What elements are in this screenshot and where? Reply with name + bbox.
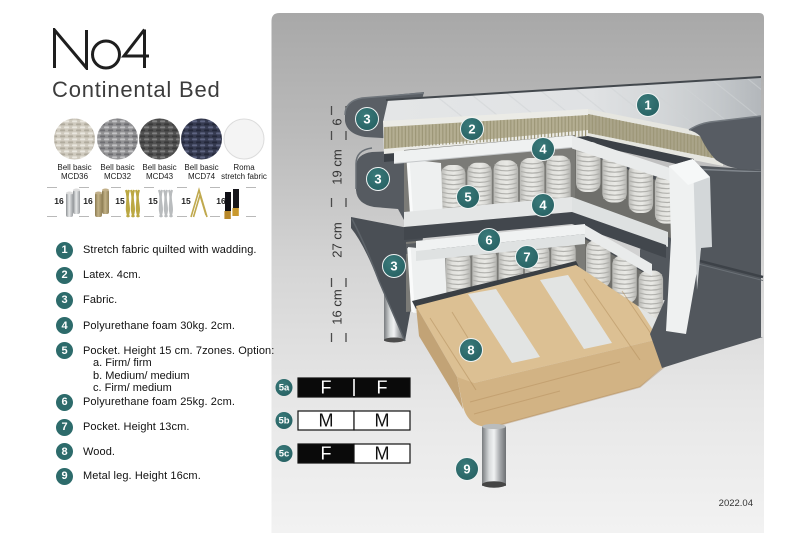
svg-text:3: 3 xyxy=(390,259,397,274)
svg-text:16: 16 xyxy=(83,196,93,206)
svg-text:15: 15 xyxy=(115,196,125,206)
svg-text:19 cm: 19 cm xyxy=(329,149,344,184)
svg-text:27 cm: 27 cm xyxy=(329,222,344,257)
svg-text:8: 8 xyxy=(467,343,474,358)
svg-text:3: 3 xyxy=(363,112,370,127)
svg-text:M: M xyxy=(375,444,390,464)
svg-text:F: F xyxy=(377,378,388,398)
svg-text:5c: 5c xyxy=(279,449,290,460)
svg-text:F: F xyxy=(321,444,332,464)
svg-text:7: 7 xyxy=(523,250,530,265)
svg-text:6: 6 xyxy=(329,118,344,125)
svg-text:M: M xyxy=(319,411,334,431)
svg-text:F: F xyxy=(321,378,332,398)
svg-text:4: 4 xyxy=(539,198,547,213)
svg-text:5: 5 xyxy=(464,190,471,205)
svg-text:9: 9 xyxy=(463,462,470,477)
svg-text:3: 3 xyxy=(374,172,381,187)
svg-text:2022.04: 2022.04 xyxy=(719,498,753,509)
svg-text:2: 2 xyxy=(468,122,475,137)
svg-text:16 cm: 16 cm xyxy=(329,289,344,324)
svg-text:16: 16 xyxy=(216,196,226,206)
svg-text:1: 1 xyxy=(644,98,651,113)
svg-text:5b: 5b xyxy=(278,416,289,427)
svg-text:5a: 5a xyxy=(279,383,290,394)
svg-text:6: 6 xyxy=(485,233,492,248)
svg-text:16: 16 xyxy=(54,196,64,206)
svg-text:M: M xyxy=(375,411,390,431)
svg-text:4: 4 xyxy=(539,142,547,157)
svg-text:15: 15 xyxy=(148,196,158,206)
svg-text:15: 15 xyxy=(181,196,191,206)
